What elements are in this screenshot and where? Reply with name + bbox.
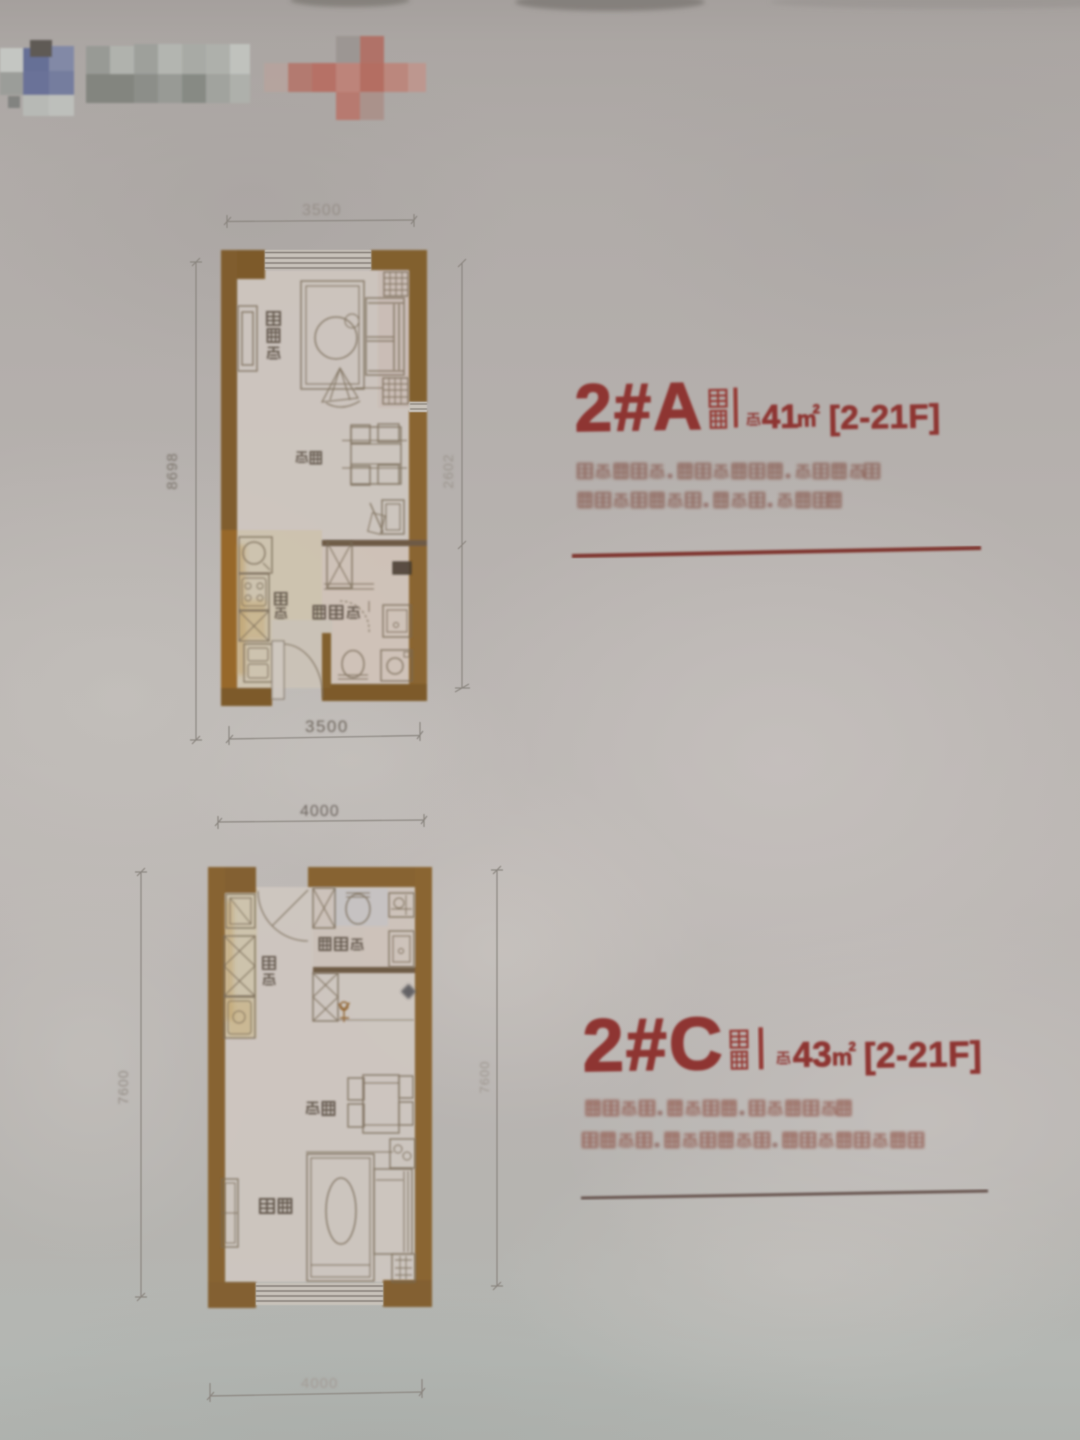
svg-text:2: 2 [813, 401, 820, 416]
svg-text:8698: 8698 [164, 452, 181, 489]
svg-text:7600: 7600 [477, 1061, 492, 1094]
svg-text:2602: 2602 [440, 453, 456, 488]
svg-text:[2-21F]: [2-21F] [864, 1035, 983, 1076]
svg-text:3500: 3500 [305, 717, 349, 736]
svg-text:4000: 4000 [301, 1375, 338, 1392]
svg-text:43: 43 [792, 1035, 832, 1075]
svg-text:7600: 7600 [115, 1069, 131, 1104]
svg-text:3500: 3500 [302, 202, 342, 219]
svg-text:4000: 4000 [300, 803, 340, 820]
svg-text:[2-21F]: [2-21F] [829, 397, 941, 436]
svg-text:41: 41 [762, 398, 799, 436]
svg-text:2#A: 2#A [574, 369, 704, 446]
svg-text:2: 2 [849, 1039, 856, 1054]
svg-text:2#C: 2#C [582, 1002, 725, 1087]
